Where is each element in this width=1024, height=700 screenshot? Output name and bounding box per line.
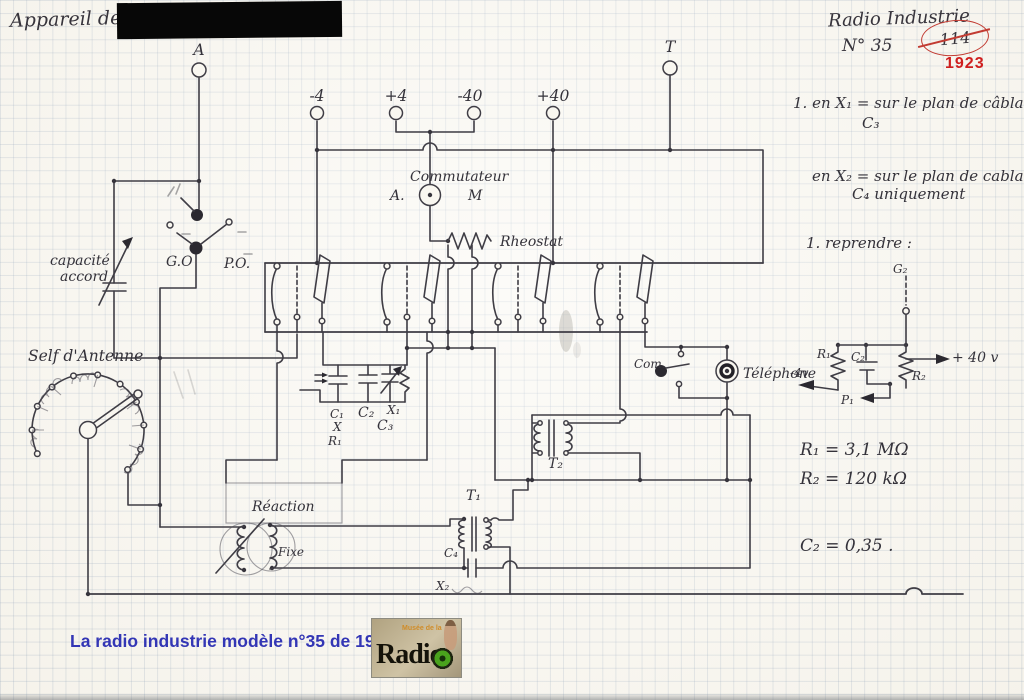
terminal-antenna: A bbox=[191, 41, 206, 77]
terminal-label: +40 bbox=[537, 87, 570, 105]
minus4v-label: -4v bbox=[790, 366, 809, 380]
terminal-minus4: -4 bbox=[309, 87, 324, 120]
valve-1 bbox=[272, 255, 330, 332]
c1-label: C₁ bbox=[330, 407, 344, 421]
wire-network bbox=[88, 75, 963, 594]
photo-bottom-edge bbox=[0, 693, 1024, 700]
note-1: 1. en X₁ = sur le plan de câblage bbox=[793, 94, 1024, 112]
redaction-box bbox=[117, 1, 342, 39]
pencil-smudge bbox=[559, 310, 573, 352]
component-values: R₁ = 3,1 MΩ R₂ = 120 kΩ C₂ = 0,35 . bbox=[799, 440, 909, 556]
capacite-label-2: accord bbox=[60, 269, 108, 285]
commutator: Commutateur A. M bbox=[388, 169, 510, 206]
terminal-label: -4 bbox=[309, 87, 324, 105]
x-label: X bbox=[332, 420, 342, 434]
capacite-label-1: capacité bbox=[50, 253, 110, 269]
bias-r1-label: R₁ bbox=[816, 347, 831, 361]
terminal-label: A bbox=[191, 41, 204, 59]
valve-2 bbox=[382, 255, 440, 332]
value-c2: C₂ = 0,35 . bbox=[800, 536, 894, 556]
value-r2: R₂ = 120 kΩ bbox=[799, 469, 907, 489]
antenna-coil-label: Self d'Antenne bbox=[28, 347, 143, 365]
pos-m-label: M bbox=[467, 188, 483, 204]
logo-figure-icon bbox=[444, 620, 457, 650]
t2-label: T₂ bbox=[548, 456, 563, 472]
terminal-label: T bbox=[665, 38, 677, 56]
com-switch: Com. bbox=[634, 351, 689, 386]
antenna-coil-arm bbox=[92, 394, 137, 429]
model-number: N° 35 bbox=[842, 36, 892, 56]
reaction-label: Réaction bbox=[251, 499, 315, 515]
rheostat: Rheostat bbox=[448, 233, 563, 250]
valve-4 bbox=[595, 255, 653, 332]
t1-label: T₁ bbox=[466, 488, 481, 504]
terminal-label: -40 bbox=[458, 87, 483, 105]
c3-label: C₃ bbox=[377, 418, 394, 434]
c4-label: C₄ bbox=[444, 546, 458, 560]
po-label: P.O. bbox=[223, 256, 250, 272]
wave-range-switch: G.O P.O. bbox=[166, 184, 252, 272]
note-3: 1. reprendre : bbox=[806, 234, 912, 252]
r1-small-label: R₁ bbox=[327, 434, 342, 448]
schematic-drawing: A T -4 +4 -40 +40 bbox=[0, 0, 1024, 700]
valve-3 bbox=[493, 255, 551, 332]
radio-museum-logo: Musée de la Radio bbox=[371, 618, 462, 678]
plus40v-label: + 40 v bbox=[952, 350, 998, 366]
com-label: Com. bbox=[634, 357, 666, 371]
terminal-plus40: +40 bbox=[537, 87, 570, 120]
bias-r2-label: R₂ bbox=[911, 369, 926, 383]
grid-capacitor-group: C₁ X R₁ C₂ X₁ C₃ bbox=[300, 332, 409, 448]
note-1-sub: C₃ bbox=[862, 114, 880, 132]
schematic-page: A T -4 +4 -40 +40 bbox=[0, 0, 1024, 700]
year-stamp: 1923 bbox=[945, 55, 985, 73]
terminal-label: +4 bbox=[385, 87, 408, 105]
transformer-t1: T₁ C₄ X₂ bbox=[435, 488, 491, 593]
handwritten-notes: 1. en X₁ = sur le plan de câblage C₃ en … bbox=[793, 94, 1024, 252]
terminal-earth: T bbox=[663, 38, 677, 75]
capacitor-c4 bbox=[468, 559, 476, 577]
pencil-marks bbox=[174, 370, 195, 398]
go-label: G.O bbox=[166, 254, 193, 270]
fixe-label: Fixe bbox=[277, 545, 304, 559]
value-r1: R₁ = 3,1 MΩ bbox=[799, 440, 909, 460]
bias-network: G₂ R₁ C₂ R₂ P₁ -4v + 40 v bbox=[790, 262, 998, 407]
logo-small-text: Musée de la bbox=[402, 625, 442, 632]
p1-label: P₁ bbox=[840, 393, 854, 407]
x1-label: X₁ bbox=[386, 403, 400, 417]
transformer-t2: T₂ bbox=[534, 420, 572, 472]
commutateur-label: Commutateur bbox=[410, 169, 510, 185]
bias-c2-label: C₂ bbox=[851, 350, 865, 364]
caption-text: La radio industrie modèle n°35 de 1923 bbox=[70, 631, 394, 652]
terminal-minus40: -40 bbox=[458, 87, 483, 120]
x2-label: X₂ bbox=[435, 579, 450, 593]
note-2-sub: C₄ uniquement bbox=[852, 185, 966, 203]
terminal-plus4: +4 bbox=[385, 87, 408, 120]
reaction-coupler: Réaction Fixe bbox=[216, 483, 342, 575]
g2-label: G₂ bbox=[893, 262, 908, 276]
rheostat-label: Rheostat bbox=[499, 234, 563, 250]
pos-a-label: A. bbox=[388, 188, 405, 204]
note-2: en X₂ = sur le plan de cablage bbox=[812, 167, 1024, 185]
c2-label: C₂ bbox=[358, 405, 375, 421]
pencil-smudge bbox=[573, 342, 581, 358]
